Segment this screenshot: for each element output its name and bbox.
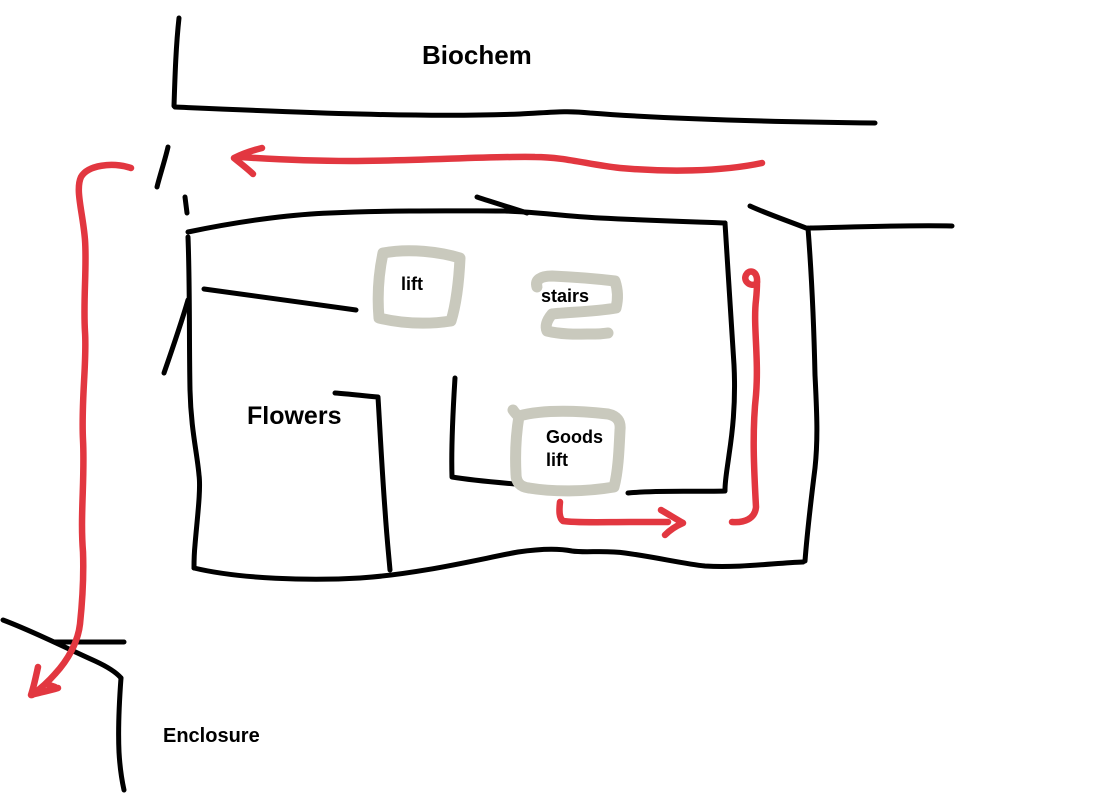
room-bottom-edge [194,549,803,579]
route-right-arrow-curl [745,271,757,284]
label-biochem: Biochem [422,40,532,71]
wall-strokes [3,18,952,790]
room-top-edge [188,211,725,232]
inner-wall-goods-corner [452,378,515,484]
wall-left-diagonal [164,300,188,373]
outer-wall-diagonal-spur [750,206,806,228]
label-enclosure: Enclosure [163,725,260,748]
wall-top-left-vertical [174,18,179,106]
label-goods-lift-line1: Goods [546,426,603,449]
room-right-wall [725,223,735,490]
inner-wall-lift-corridor [204,289,356,310]
wall-biochem-corridor [175,107,875,123]
label-lift: lift [401,274,423,295]
route-strokes [31,148,762,695]
wall-left-dash [185,197,187,213]
inner-wall-flowers-L [335,393,390,570]
label-goods-lift-line2: lift [546,449,603,472]
room-left-wall [188,237,200,568]
outer-wall-right-vertical [805,228,817,561]
wall-left-vertical-segment [157,147,168,187]
label-stairs: stairs [541,286,589,307]
outer-wall-top-horizontal [810,226,952,228]
inner-wall-right-of-goods [628,491,725,493]
route-goods-arrow-shaft [559,502,668,522]
route-left-line [32,165,131,695]
sketch-drawing [0,0,1115,800]
enclosure-vertical-wall [119,678,124,790]
route-left-arrowhead-dash [46,684,55,687]
floor-plan-sketch: Biochem lift stairs Flowers Goods lift E… [0,0,1115,800]
label-goods-lift: Goods lift [546,426,603,472]
label-flowers: Flowers [247,402,341,431]
route-top-arrow-shaft [240,157,762,171]
